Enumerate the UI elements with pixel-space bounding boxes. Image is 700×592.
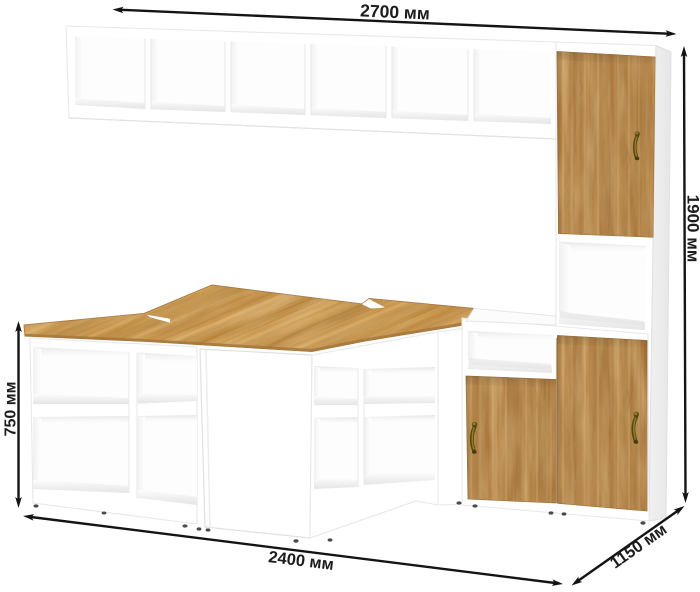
svg-text:1900 мм: 1900 мм bbox=[684, 195, 700, 263]
svg-text:750 мм: 750 мм bbox=[3, 382, 20, 437]
svg-text:2700 мм: 2700 мм bbox=[360, 0, 431, 23]
